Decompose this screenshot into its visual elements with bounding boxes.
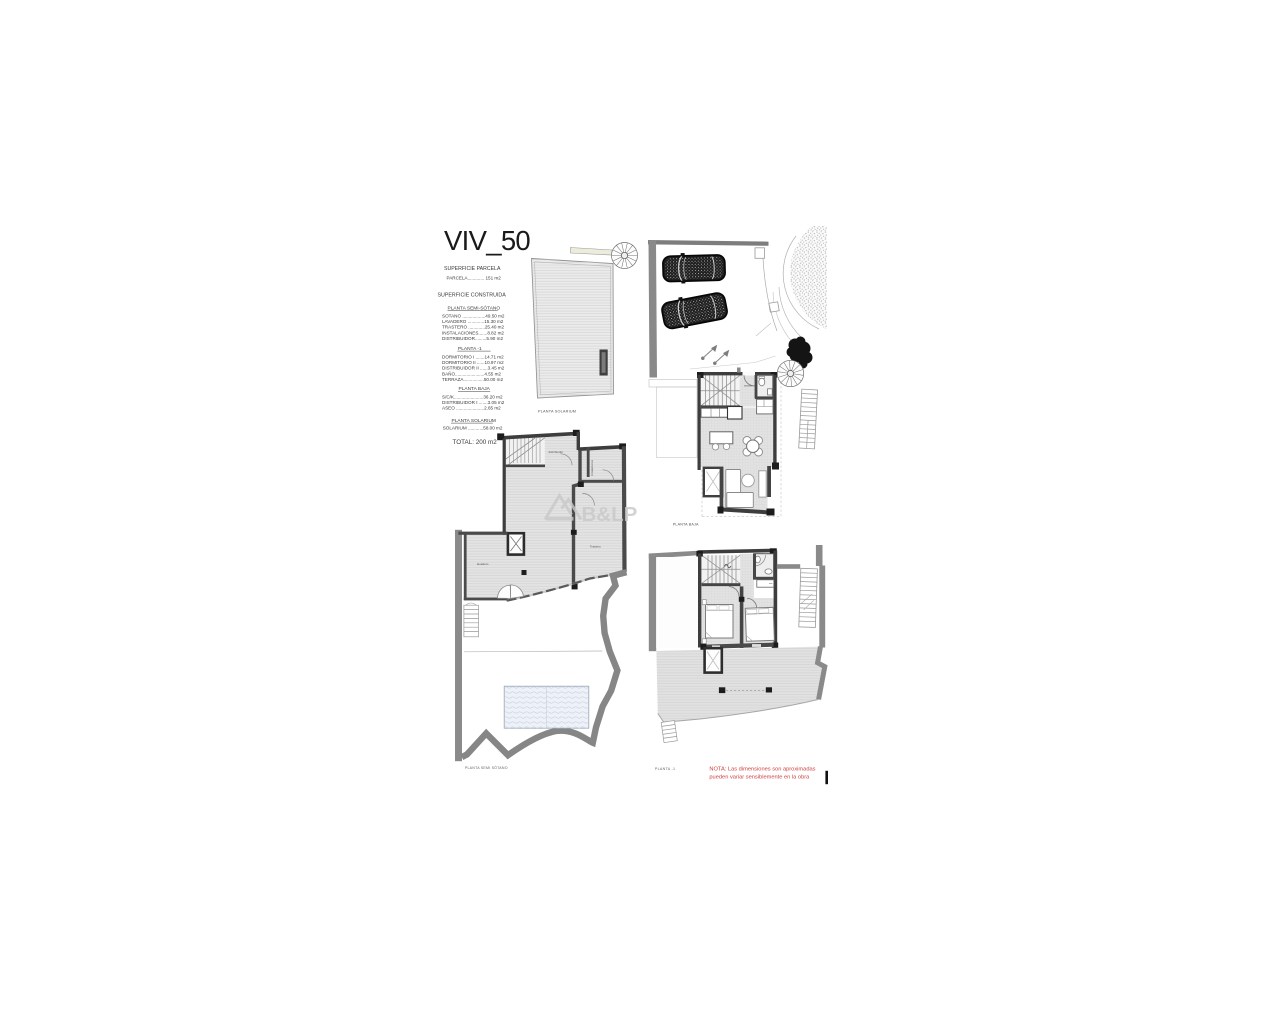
svg-text:PARCELA............. 151 m2: PARCELA............. 151 m2 — [447, 276, 502, 281]
svg-text:ASEO ......................2.6: ASEO ......................2.65 m2 — [442, 406, 501, 411]
svg-text:SOTANO ..................49.50: SOTANO ..................49.50 m2 — [442, 314, 505, 319]
svg-text:NOTA: Las dimensiones son apro: NOTA: Las dimensiones son aproximadas — [709, 767, 815, 773]
svg-text:SOLARIUM ............58.00 m2: SOLARIUM ............58.00 m2 — [443, 425, 503, 430]
svg-text:DORMITORIO II ......10.97 m2: DORMITORIO II ......10.97 m2 — [442, 360, 504, 365]
svg-text:DISTRIBUIDOR.........5.90 m2: DISTRIBUIDOR.........5.90 m2 — [442, 336, 503, 341]
svg-text:VIV_50: VIV_50 — [444, 225, 530, 256]
svg-text:pueden variar sensiblemente en: pueden variar sensiblemente en la obra — [709, 774, 810, 780]
svg-text:SUPERFICIE CONSTRUIDA: SUPERFICIE CONSTRUIDA — [438, 293, 507, 299]
svg-text:instalaciones: instalaciones — [590, 459, 594, 476]
svg-text:TERRAZA................50.00 m: TERRAZA................50.00 m2 — [442, 377, 503, 382]
svg-text:TRASTERO .............25.40 m2: TRASTERO .............25.40 m2 — [442, 325, 504, 330]
svg-text:PLANTA SOLARIUM: PLANTA SOLARIUM — [538, 410, 576, 414]
svg-text:distribuidor: distribuidor — [549, 450, 564, 454]
svg-text:TOTAL: 200 m2: TOTAL: 200 m2 — [453, 439, 498, 446]
svg-text:PLANTA SEMI-SÓTANO: PLANTA SEMI-SÓTANO — [448, 304, 501, 311]
svg-text:PLANTA BAJA: PLANTA BAJA — [673, 523, 699, 527]
svg-text:Trastero: Trastero — [590, 545, 601, 549]
svg-text:DORMITORIO I .......14.71 m2: DORMITORIO I .......14.71 m2 — [442, 354, 504, 359]
svg-text:LAVADERO .............15.30 m2: LAVADERO .............15.30 m2 — [442, 319, 504, 324]
svg-text:DISTRIBUIDOR I .......3.05 m2: DISTRIBUIDOR I .......3.05 m2 — [442, 400, 505, 405]
svg-text:SUPERFICIE PARCELA: SUPERFICIE PARCELA — [444, 266, 501, 272]
svg-text:PLANTA -1: PLANTA -1 — [655, 767, 675, 771]
svg-text:PLANTA SEMI SÓTANO: PLANTA SEMI SÓTANO — [465, 765, 508, 770]
svg-text:INSTALACIONES.......8.82 m2: INSTALACIONES.......8.82 m2 — [442, 330, 504, 335]
svg-text:BAÑO.......................4.5: BAÑO.......................4.55 m2 — [442, 370, 501, 376]
svg-text:DISTRIBUIDOR II ......3.45 m2: DISTRIBUIDOR II ......3.45 m2 — [442, 366, 505, 371]
svg-text:S/C/K.......................36: S/C/K.......................36.20 m2 — [442, 394, 503, 399]
svg-text:lavadero: lavadero — [477, 562, 489, 566]
svg-text:B&LP: B&LP — [582, 503, 638, 526]
